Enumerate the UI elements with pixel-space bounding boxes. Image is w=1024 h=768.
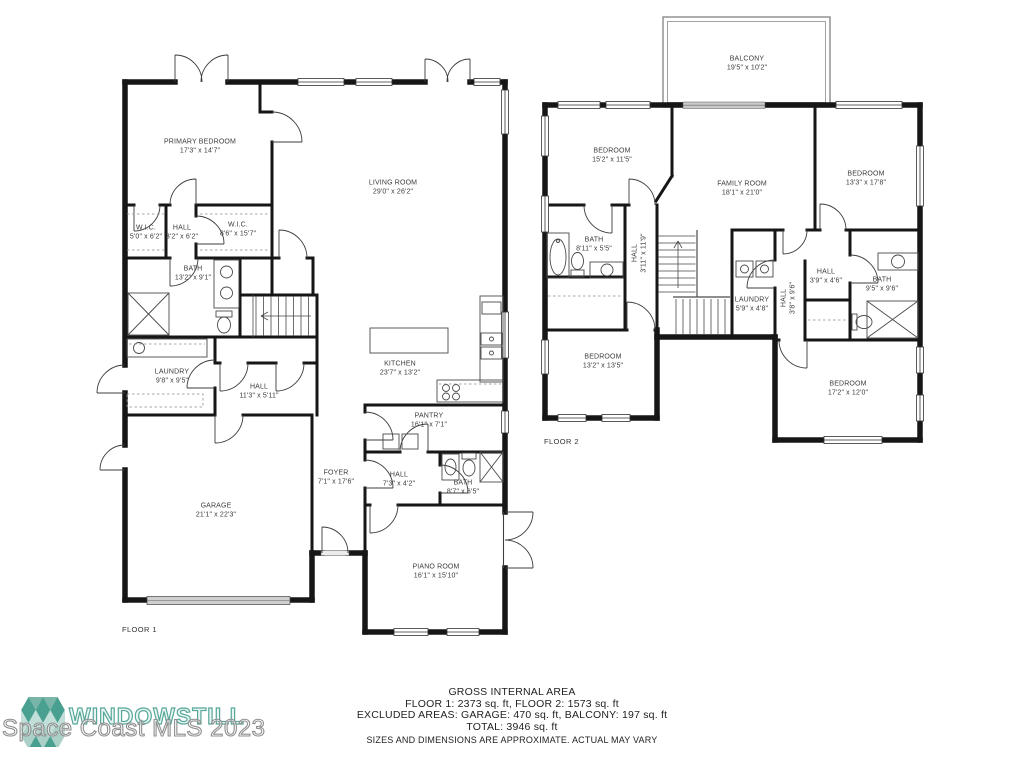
room-label-hall-f: HALL 3'9" x 4'6" (810, 269, 842, 286)
floor1-stairs (253, 295, 311, 337)
floor1-garage-door (147, 597, 290, 605)
room-label-wic-2: W.I.C. 8'6" x 15'7" (220, 222, 256, 239)
room-label-bedroom-br: BEDROOM 17'2" x 12'0" (828, 381, 868, 398)
floor2-balcony-slider (683, 102, 765, 109)
room-label-hall-a: HALL 3'2" x 6'2" (166, 225, 198, 242)
floor2-interior-walls (545, 105, 920, 340)
room-label-family-room: FAMILY ROOM 18'1" x 21'0" (717, 181, 767, 198)
room-label-living-room: LIVING ROOM 29'0" x 26'2" (369, 180, 417, 197)
room-label-hall-e: HALL 3'8" x 9'6" (781, 282, 798, 314)
floorplan-drawing (0, 0, 1024, 768)
gross-internal-area-title: GROSS INTERNAL AREA (0, 687, 1024, 699)
room-label-hall-b: HALL 11'3" x 5'11" (239, 384, 278, 401)
floor2-tag: FLOOR 2 (544, 437, 579, 446)
room-label-balcony: BALCONY 19'5" x 10'2" (727, 56, 767, 73)
floor2-closet-dashes (548, 296, 847, 320)
room-label-bath-3: BATH 8'11" x 5'5" (576, 237, 612, 254)
room-label-hall-c: HALL 7'3" x 4'2" (383, 472, 415, 489)
room-label-wic-1: W.I.C. 5'0" x 6'2" (130, 225, 162, 242)
room-label-piano-room: PIANO ROOM 16'1" x 15'10" (412, 564, 459, 581)
room-label-pantry: PANTRY 16'1" x 7'1" (411, 413, 447, 430)
room-label-garage: GARAGE 21'1" x 22'3" (196, 503, 236, 520)
room-label-bedroom-tl: BEDROOM 15'2" x 11'5" (592, 148, 632, 165)
room-label-foyer: FOYER 7'1" x 17'6" (318, 470, 354, 487)
room-label-laundry-2: LAUNDRY 5'9" x 4'8" (735, 297, 769, 314)
room-label-hall-d: HALL 3'11" x 11'9" (632, 233, 649, 272)
mls-watermark-text: Space Coast MLS 2023 (2, 715, 266, 743)
room-label-primary-bedroom: PRIMARY BEDROOM 17'3" x 14'7" (164, 139, 236, 156)
room-label-bedroom-bl: BEDROOM 13'2" x 13'5" (583, 354, 623, 371)
room-label-kitchen: KITCHEN 23'7" x 13'2" (380, 361, 420, 378)
room-label-bedroom-tr: BEDROOM 13'3" x 17'8" (846, 171, 886, 188)
room-label-bath-4: BATH 9'5" x 9'6" (866, 277, 898, 294)
floorplan-image: PRIMARY BEDROOM 17'3" x 14'7" LIVING ROO… (0, 0, 1024, 768)
room-label-laundry-1: LAUNDRY 9'8" x 9'5" (155, 369, 189, 386)
room-label-bath-2: BATH 8'7" x 6'5" (447, 480, 479, 497)
floor2-stairs (659, 230, 731, 335)
floor1-entry-sill (321, 551, 349, 556)
floor1-tag: FLOOR 1 (122, 625, 157, 634)
room-label-bath-1: BATH 13'2" x 9'1" (175, 266, 211, 283)
